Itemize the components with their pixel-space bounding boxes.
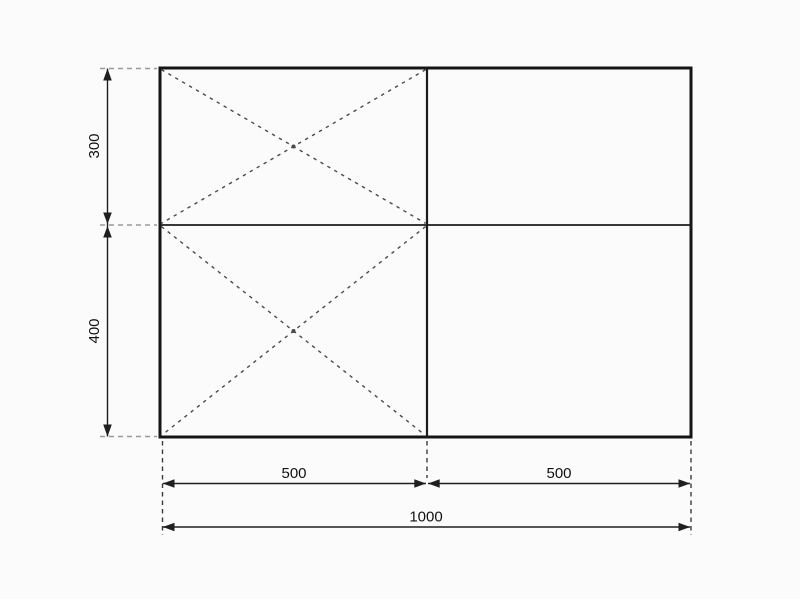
- dimension-label-1000: 1000: [409, 509, 442, 526]
- arrowhead-down-middle: [103, 213, 112, 225]
- top-left-diagonal-crossing-dot: [292, 145, 296, 149]
- bottom-left-diagonal-crossing-dot: [292, 329, 296, 333]
- arrowhead-up-middle: [103, 226, 112, 238]
- arrowhead-up-top: [103, 69, 112, 81]
- dimensioned-plan-drawing: 300 400 500 500 1000: [0, 0, 800, 599]
- dimension-label-500-left: 500: [281, 465, 306, 482]
- dimension-label-500-right: 500: [546, 465, 571, 482]
- arrowhead-down-bottom: [103, 425, 112, 437]
- arrowhead-left-500-left: [163, 479, 175, 487]
- arrowhead-left-500-right: [428, 479, 440, 487]
- plan-outline-rect: [160, 68, 691, 437]
- arrowhead-left-1000: [163, 523, 175, 531]
- dimension-label-300: 300: [86, 133, 103, 158]
- drawing-canvas: 300 400 500 500 1000: [0, 0, 800, 599]
- arrowhead-right-500-right: [679, 479, 691, 487]
- arrowhead-right-500-left: [414, 479, 426, 487]
- arrowhead-right-1000: [679, 523, 691, 531]
- dimension-label-400: 400: [86, 318, 103, 343]
